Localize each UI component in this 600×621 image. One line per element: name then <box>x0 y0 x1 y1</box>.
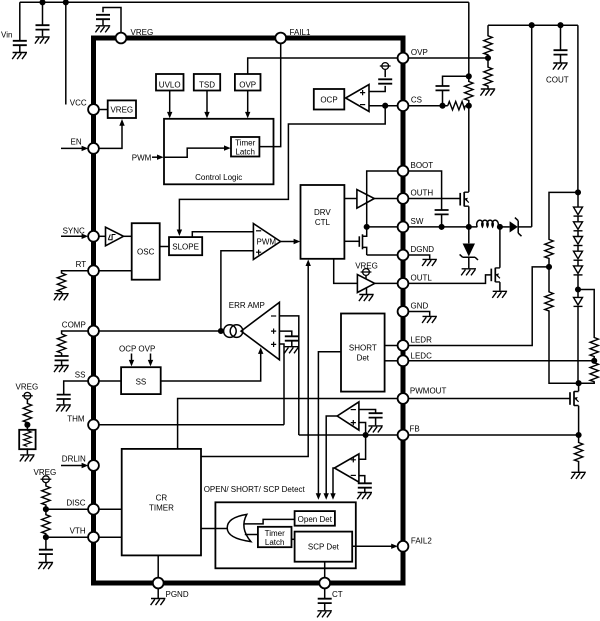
svg-text:SS: SS <box>75 370 86 379</box>
svg-text:DRLIN: DRLIN <box>62 455 86 464</box>
svg-text:OPEN/ SHORT/ SCP Detect: OPEN/ SHORT/ SCP Detect <box>204 485 306 494</box>
svg-text:BOOT: BOOT <box>411 161 434 170</box>
svg-text:OUTL: OUTL <box>411 273 433 282</box>
svg-text:LEDR: LEDR <box>411 336 433 345</box>
svg-text:Open Det: Open Det <box>298 515 333 524</box>
svg-text:FB: FB <box>410 424 420 433</box>
svg-text:DGND: DGND <box>411 245 435 254</box>
svg-text:COUT: COUT <box>546 76 569 85</box>
svg-text:Control Logic: Control Logic <box>195 173 242 182</box>
svg-text:TIMER: TIMER <box>149 504 174 513</box>
svg-text:OSC: OSC <box>137 248 155 257</box>
svg-text:VREG: VREG <box>110 106 133 115</box>
svg-text:VCC: VCC <box>70 99 87 108</box>
svg-text:Det: Det <box>357 353 370 362</box>
svg-text:SW: SW <box>411 217 424 226</box>
svg-text:THM: THM <box>67 414 85 423</box>
svg-text:VREG: VREG <box>16 382 39 391</box>
svg-text:OVP: OVP <box>239 81 256 90</box>
svg-text:OCP: OCP <box>320 95 337 104</box>
svg-text:CS: CS <box>411 96 422 105</box>
svg-text:Vin: Vin <box>1 31 12 40</box>
svg-text:OCP OVP: OCP OVP <box>119 344 155 353</box>
svg-text:EN: EN <box>71 137 82 146</box>
svg-text:PWMOUT: PWMOUT <box>410 387 447 396</box>
svg-text:Latch: Latch <box>265 538 285 547</box>
svg-text:UVLO: UVLO <box>159 81 181 90</box>
svg-text:SCP Det: SCP Det <box>308 543 340 552</box>
svg-text:PWM: PWM <box>132 153 152 162</box>
svg-text:FAIL2: FAIL2 <box>411 536 432 545</box>
svg-text:CTL: CTL <box>315 218 331 227</box>
svg-text:VREG: VREG <box>131 28 154 37</box>
svg-text:GND: GND <box>411 302 429 311</box>
svg-text:Timer: Timer <box>235 139 255 148</box>
svg-text:RT: RT <box>76 260 87 269</box>
svg-text:OUTH: OUTH <box>411 189 434 198</box>
svg-text:COMP: COMP <box>62 320 86 329</box>
svg-text:SLOPE: SLOPE <box>172 242 199 251</box>
svg-text:CR: CR <box>156 494 168 503</box>
svg-text:LEDC: LEDC <box>411 351 433 360</box>
svg-text:SS: SS <box>136 378 147 387</box>
svg-text:PGND: PGND <box>166 590 189 599</box>
svg-text:SHORT: SHORT <box>349 343 377 352</box>
svg-text:DRV: DRV <box>314 208 331 217</box>
svg-text:SYNC: SYNC <box>63 227 85 236</box>
svg-text:FAIL1: FAIL1 <box>290 28 311 37</box>
svg-text:CT: CT <box>332 590 343 599</box>
svg-text:ERR AMP: ERR AMP <box>229 301 265 310</box>
svg-text:Latch: Latch <box>235 148 255 157</box>
svg-text:VTH: VTH <box>70 527 86 536</box>
svg-text:DISC: DISC <box>66 498 85 507</box>
svg-text:TSD: TSD <box>199 81 215 90</box>
svg-text:PWM: PWM <box>257 238 277 247</box>
svg-text:OVP: OVP <box>411 48 428 57</box>
svg-text:Timer: Timer <box>265 529 285 538</box>
